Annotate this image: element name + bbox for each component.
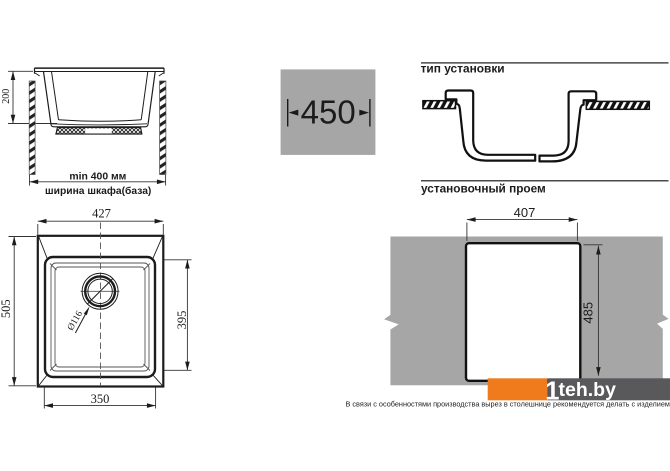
svg-text:407: 407 [514,205,536,220]
svg-text:В связи с особенностями произв: В связи с особенностями производства выр… [346,400,670,409]
svg-text:ширина шкафа(база): ширина шкафа(база) [45,185,151,197]
svg-text:min 400 мм: min 400 мм [69,171,126,182]
svg-text:505: 505 [0,299,13,318]
svg-text:450: 450 [301,94,356,131]
svg-text:установочный проем: установочный проем [421,182,546,196]
svg-text:427: 427 [92,206,111,220]
svg-text:тип установки: тип установки [421,62,505,76]
svg-text:395: 395 [175,311,189,330]
svg-text:485: 485 [581,302,596,324]
svg-text:200: 200 [1,89,12,104]
svg-text:350: 350 [91,392,110,406]
svg-text:teh.by: teh.by [559,379,617,401]
